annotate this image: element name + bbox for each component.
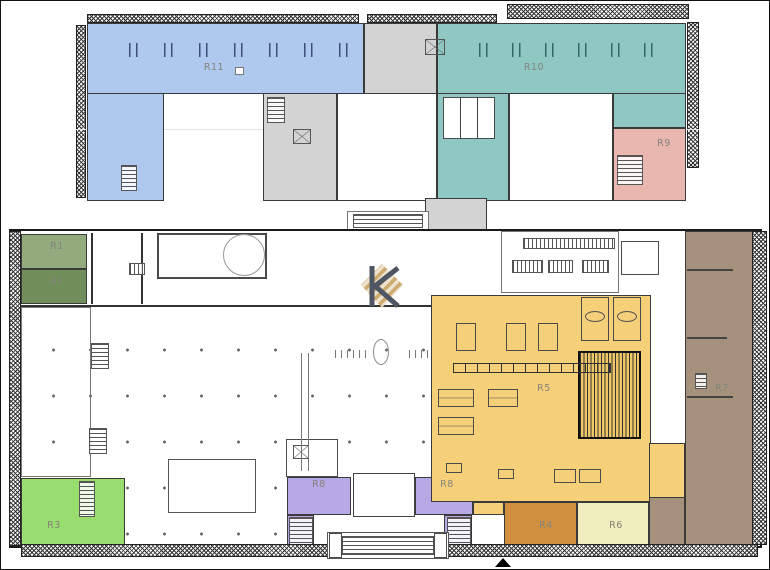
- region-r10-right-arm[interactable]: [613, 93, 686, 128]
- wall-r7-2: [687, 337, 727, 339]
- entrance-stair-top: [353, 214, 423, 228]
- wc-fixture: [498, 469, 514, 479]
- facade-hatch-top-1: [87, 14, 359, 23]
- region-label-r10: R10: [518, 63, 550, 73]
- joint-oval: [373, 339, 389, 365]
- kitchen-unit-1: [512, 260, 543, 273]
- region-label-r6: R6: [600, 521, 632, 531]
- rooms-left-block: [21, 307, 91, 477]
- stairs-left-core-1: [91, 343, 109, 369]
- stairs-r11-arm: [121, 165, 137, 191]
- entrance-pillar-right: [434, 533, 447, 558]
- desk-cluster: [438, 417, 474, 435]
- region-r7-ext[interactable]: [649, 497, 685, 547]
- floor-plan-canvas: R11 R10 R9 R1 R2 R3 R8 R8 R5 R4 R6 R7: [0, 0, 770, 570]
- region-r5-ext[interactable]: [649, 443, 685, 502]
- wc-fixture: [446, 463, 462, 473]
- stairs-topleft: [129, 263, 145, 275]
- desk-cluster: [488, 389, 518, 407]
- wall-r7-3: [687, 396, 733, 398]
- facade-hatch-top-2: [367, 14, 497, 23]
- stairs-r8-right: [447, 517, 471, 545]
- hall-platform: [168, 459, 256, 513]
- stairs-r3: [79, 481, 95, 517]
- kitchen-counter-long: [523, 238, 615, 249]
- region-label-r8-left: R8: [303, 480, 335, 490]
- desk-row-r10: [479, 43, 659, 57]
- restroom-block-r10: [443, 97, 495, 139]
- entrance-arrow-marker: [495, 558, 511, 567]
- facade-hatch-left-bottom-bldg: [9, 231, 21, 546]
- region-r3[interactable]: [21, 478, 125, 547]
- region-label-r3: R3: [38, 521, 70, 531]
- meeting-table-oval: [585, 311, 605, 322]
- desk-cluster-v: [506, 323, 526, 351]
- stairs-left-core-2: [89, 428, 107, 454]
- stairs-core-a: [267, 97, 285, 123]
- elevator-shaft-icon-2: [293, 129, 311, 144]
- stairs-r9: [617, 155, 643, 185]
- connector-core: [425, 198, 487, 230]
- column-marker-square: [235, 67, 244, 75]
- entrance-lobby-box: [353, 473, 415, 517]
- entrance-pillar-left: [329, 533, 342, 558]
- small-room-r5: [554, 469, 576, 483]
- elevator-shaft-icon: [425, 39, 445, 55]
- region-label-r5: R5: [528, 384, 560, 394]
- facade-hatch-right-bottom-bldg: [752, 231, 767, 545]
- small-room-r5: [579, 469, 601, 483]
- region-r5-stub[interactable]: [473, 502, 504, 515]
- region-label-r4: R4: [530, 521, 562, 531]
- expansion-joint-left: [335, 350, 369, 358]
- facade-hatch-top-3: [507, 4, 689, 19]
- desk-cluster-v: [456, 323, 476, 351]
- region-label-r8-right: R8: [431, 480, 463, 490]
- wall-r7-1: [687, 269, 733, 271]
- region-label-r11: R11: [198, 63, 230, 73]
- room-top-right: [621, 241, 659, 275]
- region-r11[interactable]: [87, 23, 364, 94]
- region-label-r2: R2: [41, 277, 73, 287]
- stairs-r8-left: [289, 517, 313, 545]
- service-core-mid-top: [364, 23, 437, 94]
- desk-cluster-v: [538, 323, 558, 351]
- long-counter-r5: [453, 363, 611, 373]
- region-label-r9: R9: [648, 139, 680, 149]
- desk-cluster: [438, 389, 474, 407]
- facade-hatch-left-top-bldg: [76, 25, 86, 198]
- round-table: [223, 234, 265, 276]
- facade-hatch-right-top-bldg: [687, 22, 699, 168]
- kitchen-unit-2: [548, 260, 573, 273]
- wall-line-top-strip-1: [91, 233, 93, 304]
- courtyard-right: [509, 93, 613, 201]
- entrance-stair-bottom: [342, 536, 434, 555]
- k-monogram-logo: [359, 263, 405, 309]
- region-label-r7: R7: [706, 384, 738, 394]
- rail-line-1: [301, 353, 302, 471]
- kitchen-unit-3: [582, 260, 609, 273]
- desk-row-r11: [129, 43, 351, 57]
- courtyard-left: [337, 93, 437, 201]
- region-r10[interactable]: [437, 23, 686, 94]
- region-label-r1: R1: [41, 242, 73, 252]
- rail-line-2: [308, 353, 309, 471]
- meeting-table-oval: [617, 311, 637, 322]
